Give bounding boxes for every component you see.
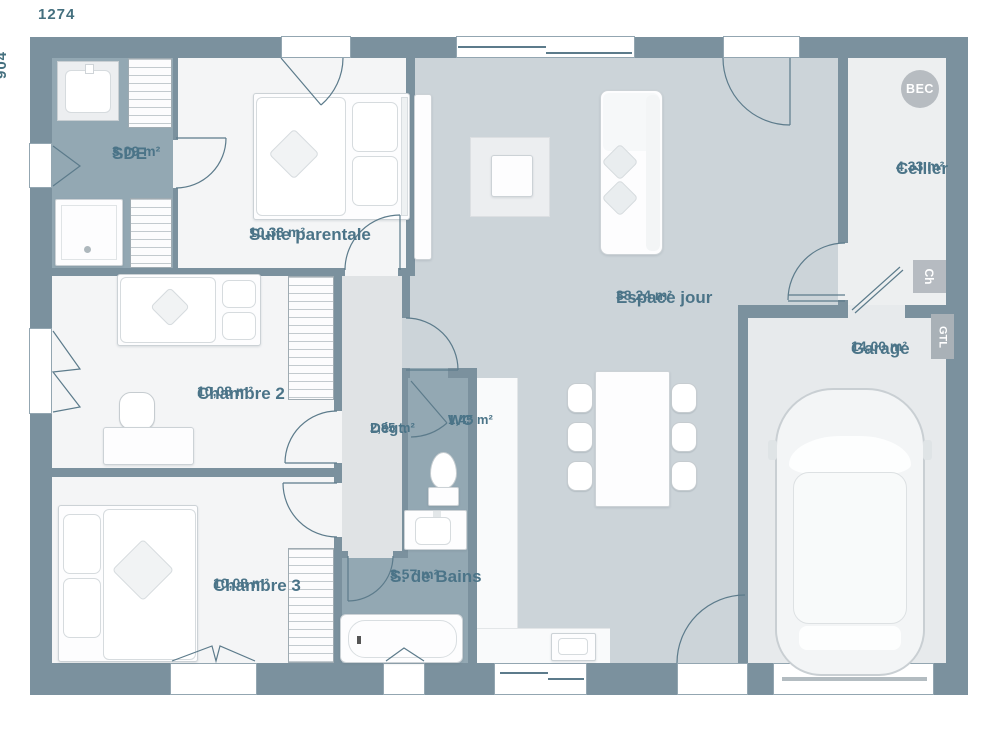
doorway-cellier bbox=[838, 243, 848, 300]
dining-chair-icon bbox=[671, 461, 697, 491]
single-bed-icon bbox=[117, 274, 261, 346]
room-floor-degagement bbox=[342, 276, 402, 551]
pillow bbox=[222, 280, 256, 308]
pillow bbox=[63, 578, 101, 638]
wardrobe-icon bbox=[288, 276, 334, 400]
wardrobe-icon bbox=[288, 548, 334, 663]
ch-badge: Ch bbox=[913, 260, 946, 293]
window bbox=[383, 663, 425, 695]
faucet-icon bbox=[433, 511, 441, 517]
pillow bbox=[63, 514, 101, 574]
sideboard-icon bbox=[414, 94, 432, 260]
doorway-degagement bbox=[402, 318, 410, 368]
window bbox=[723, 36, 800, 58]
wardrobe-icon bbox=[128, 58, 172, 128]
sofa-back bbox=[646, 95, 660, 251]
headboard bbox=[401, 97, 408, 216]
dining-chair-icon bbox=[671, 422, 697, 452]
toilet-tank bbox=[428, 487, 459, 506]
doorway-salle-de-bains bbox=[348, 551, 393, 558]
room-floor-espace-jour-mid bbox=[415, 305, 738, 368]
bathtub-drain bbox=[357, 636, 361, 644]
doorway-chambre-2 bbox=[334, 411, 342, 463]
car-icon bbox=[775, 388, 925, 676]
doorway-suite bbox=[345, 268, 398, 276]
window bbox=[170, 663, 257, 695]
dining-chair-icon bbox=[671, 383, 697, 413]
dining-chair-icon bbox=[567, 461, 593, 491]
dining-table-icon bbox=[595, 371, 670, 507]
pillow bbox=[352, 102, 398, 152]
doorway-wc bbox=[410, 368, 448, 378]
car-rear-window bbox=[799, 626, 901, 650]
window-sliding bbox=[494, 663, 587, 695]
bec-badge: BEC bbox=[901, 70, 939, 108]
car-mirror bbox=[768, 440, 777, 460]
window-sliding-bay bbox=[456, 36, 635, 58]
sink-bowl bbox=[415, 517, 451, 545]
window bbox=[29, 328, 52, 414]
cushion bbox=[602, 180, 639, 217]
pillow bbox=[222, 312, 256, 340]
dining-chair-icon bbox=[567, 383, 593, 413]
toilet-icon bbox=[430, 452, 457, 489]
dimension-height-label: 904 bbox=[0, 51, 10, 79]
washbasin-icon bbox=[57, 61, 119, 121]
bathtub-basin bbox=[348, 620, 457, 658]
entry-door-opening bbox=[677, 663, 748, 695]
vanity-sink-icon bbox=[404, 510, 467, 550]
bathtub-icon bbox=[340, 614, 463, 663]
car-mirror bbox=[923, 440, 932, 460]
dining-chair-icon bbox=[567, 422, 593, 452]
sofa-icon bbox=[600, 90, 663, 255]
office-chair-icon bbox=[119, 392, 155, 430]
coffee-table-icon bbox=[491, 155, 533, 197]
kitchen-sink-icon bbox=[551, 633, 596, 661]
double-bed-icon bbox=[253, 93, 410, 220]
car-roof bbox=[793, 472, 907, 624]
doorway-cellier-garage bbox=[848, 305, 905, 318]
car-windshield bbox=[789, 436, 911, 476]
window bbox=[281, 36, 351, 58]
room-floor-espace-jour-corridor bbox=[410, 276, 415, 368]
doorway-sde bbox=[173, 140, 178, 188]
gtl-badge: GTL bbox=[931, 314, 954, 359]
wardrobe-icon bbox=[130, 198, 172, 268]
garage-door-panel-line bbox=[782, 677, 927, 681]
double-bed-icon bbox=[58, 505, 198, 662]
desk-icon bbox=[103, 427, 194, 465]
faucet-icon bbox=[85, 64, 94, 74]
pillow bbox=[352, 156, 398, 206]
doorway-chambre-3 bbox=[334, 483, 342, 537]
shower-icon bbox=[55, 199, 123, 266]
floor-plan: 1274 904 bbox=[0, 0, 1000, 731]
washbasin-bowl bbox=[65, 70, 111, 113]
shower-drain bbox=[84, 246, 91, 253]
dimension-width-label: 1274 bbox=[38, 6, 75, 23]
window bbox=[29, 143, 52, 188]
sink-bowl bbox=[558, 638, 588, 655]
